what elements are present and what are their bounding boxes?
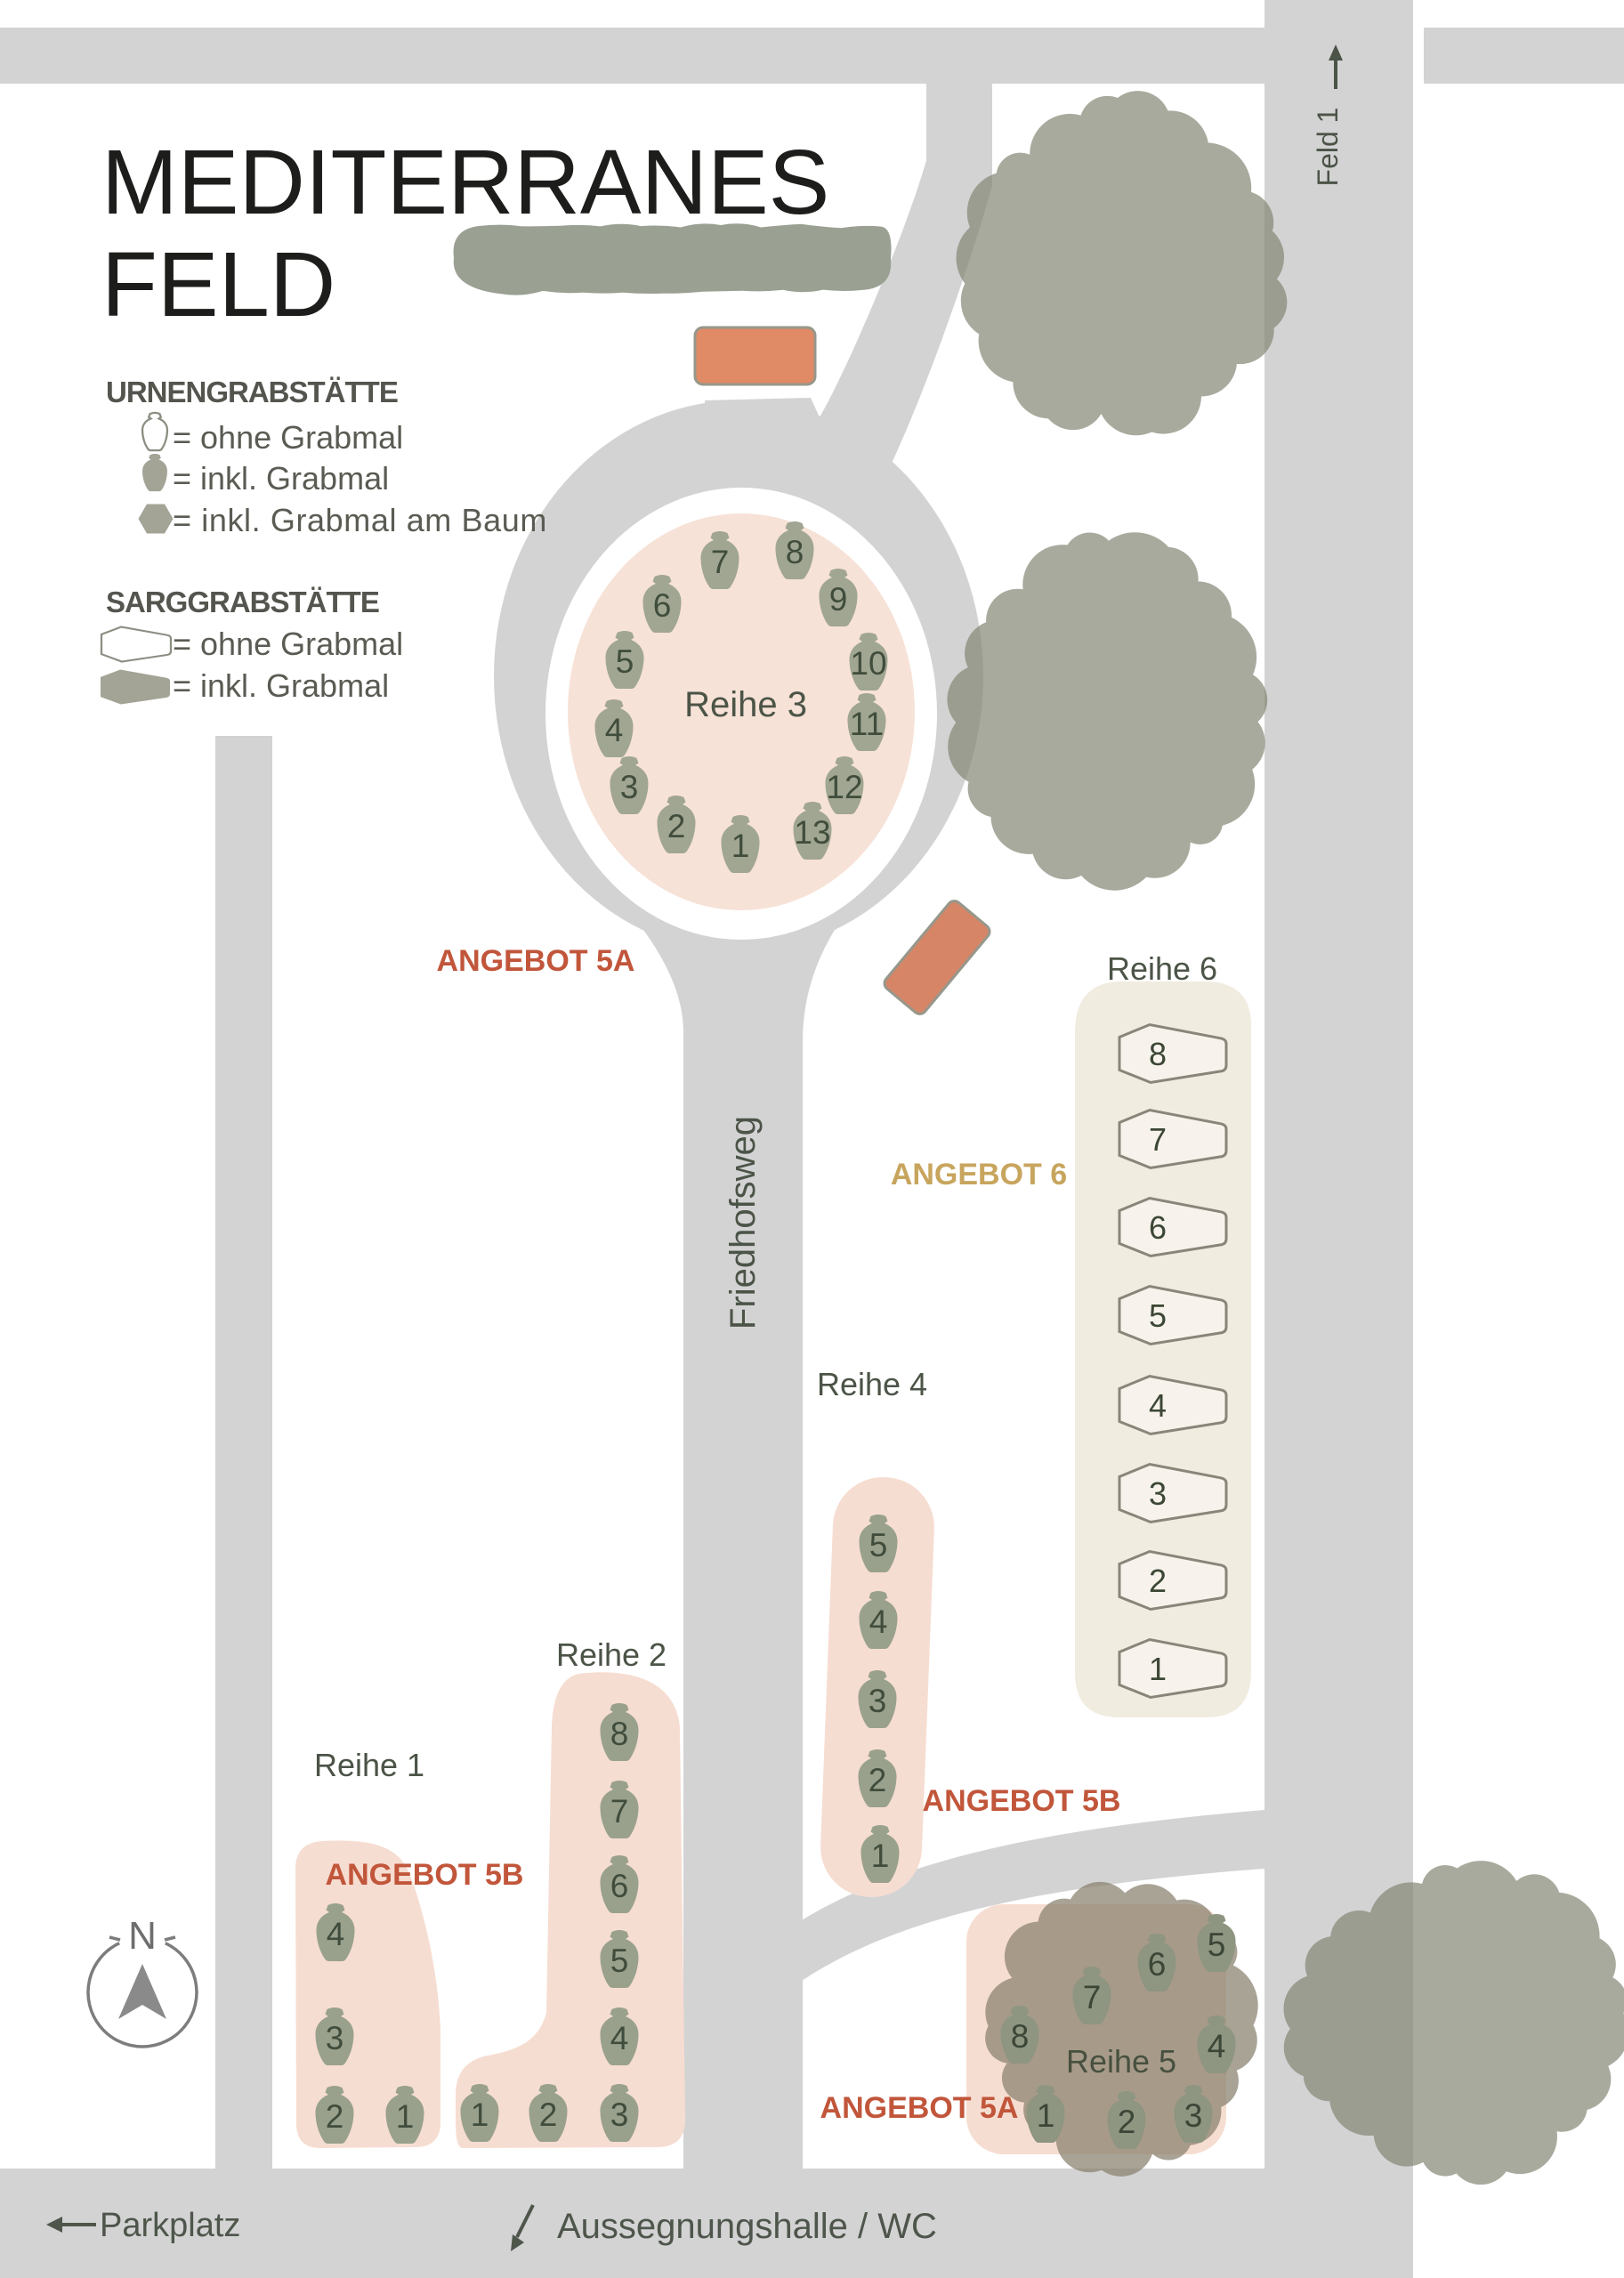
svg-text:7: 7 <box>1083 1979 1102 2015</box>
svg-text:1: 1 <box>471 2096 489 2133</box>
svg-text:= inkl. Grabmal am Baum: = inkl. Grabmal am Baum <box>173 502 547 538</box>
svg-text:= ohne Grabmal: = ohne Grabmal <box>173 626 403 662</box>
svg-text:11: 11 <box>850 706 884 742</box>
svg-text:1: 1 <box>1149 1651 1167 1687</box>
svg-text:5: 5 <box>610 1943 629 1979</box>
svg-text:Friedhofsweg: Friedhofsweg <box>723 1116 763 1329</box>
svg-text:4: 4 <box>610 2020 629 2056</box>
svg-text:7: 7 <box>610 1793 629 1830</box>
svg-text:8: 8 <box>1011 2018 1030 2055</box>
svg-text:6: 6 <box>1149 1209 1167 1246</box>
svg-text:3: 3 <box>326 2020 344 2056</box>
svg-text:3: 3 <box>1184 2097 1203 2134</box>
svg-text:MEDITERRANES: MEDITERRANES <box>101 131 829 233</box>
svg-text:4: 4 <box>327 1916 345 1952</box>
svg-text:5: 5 <box>616 643 634 680</box>
svg-text:= inkl. Grabmal: = inkl. Grabmal <box>173 667 389 704</box>
svg-text:Parkplatz: Parkplatz <box>100 2207 240 2244</box>
svg-text:FELD: FELD <box>101 233 335 335</box>
svg-text:8: 8 <box>610 1716 629 1752</box>
svg-text:7: 7 <box>1149 1121 1167 1158</box>
svg-text:2: 2 <box>869 1762 887 1798</box>
svg-text:ANGEBOT 5A: ANGEBOT 5A <box>437 944 635 978</box>
svg-text:1: 1 <box>871 1838 890 1874</box>
svg-text:5: 5 <box>1208 1927 1226 1963</box>
svg-text:8: 8 <box>1149 1036 1167 1072</box>
svg-text:7: 7 <box>711 544 730 580</box>
svg-text:Feld 1: Feld 1 <box>1312 108 1344 187</box>
svg-text:= ohne Grabmal: = ohne Grabmal <box>173 419 403 456</box>
svg-text:Reihe 3: Reihe 3 <box>684 685 807 724</box>
svg-text:4: 4 <box>605 712 624 748</box>
svg-text:6: 6 <box>653 587 672 624</box>
svg-text:3: 3 <box>610 2096 629 2133</box>
svg-text:ANGEBOT 5A: ANGEBOT 5A <box>820 2091 1019 2125</box>
svg-text:Reihe 2: Reihe 2 <box>556 1636 667 1673</box>
svg-text:ANGEBOT 6: ANGEBOT 6 <box>891 1158 1067 1192</box>
svg-text:Reihe 6: Reihe 6 <box>1107 950 1217 987</box>
svg-text:5: 5 <box>869 1527 888 1563</box>
svg-text:1: 1 <box>731 828 750 864</box>
svg-text:ANGEBOT 5B: ANGEBOT 5B <box>923 1784 1121 1818</box>
svg-text:SARGGRABSTÄTTE: SARGGRABSTÄTTE <box>106 586 379 618</box>
svg-text:4: 4 <box>1208 2028 1226 2064</box>
svg-text:6: 6 <box>610 1868 629 1904</box>
svg-text:6: 6 <box>1148 1946 1167 1983</box>
svg-text:5: 5 <box>1149 1297 1167 1334</box>
svg-text:2: 2 <box>667 808 686 844</box>
svg-text:8: 8 <box>786 534 804 570</box>
svg-text:3: 3 <box>1149 1475 1167 1512</box>
svg-text:Aussegnungshalle / WC: Aussegnungshalle / WC <box>557 2207 937 2246</box>
svg-text:3: 3 <box>620 769 639 805</box>
svg-text:9: 9 <box>829 581 848 618</box>
svg-text:1: 1 <box>1037 2097 1055 2134</box>
svg-text:2: 2 <box>326 2098 344 2135</box>
svg-text:12: 12 <box>826 769 862 805</box>
svg-text:13: 13 <box>794 814 830 851</box>
svg-text:4: 4 <box>869 1603 888 1640</box>
svg-text:= inkl. Grabmal: = inkl. Grabmal <box>173 460 389 497</box>
svg-text:2: 2 <box>539 2096 558 2133</box>
svg-text:Reihe 5: Reihe 5 <box>1066 2043 1176 2080</box>
svg-text:10: 10 <box>850 645 886 682</box>
svg-text:Reihe 4: Reihe 4 <box>817 1366 927 1402</box>
svg-text:Reihe 1: Reihe 1 <box>314 1747 424 1783</box>
svg-text:ANGEBOT 5B: ANGEBOT 5B <box>326 1858 524 1892</box>
svg-text:3: 3 <box>869 1683 887 1719</box>
svg-text:URNENGRABSTÄTTE: URNENGRABSTÄTTE <box>106 376 398 408</box>
svg-text:2: 2 <box>1118 2104 1136 2140</box>
svg-text:N: N <box>128 1914 157 1958</box>
svg-text:2: 2 <box>1149 1563 1167 1599</box>
svg-text:4: 4 <box>1149 1387 1167 1424</box>
svg-text:1: 1 <box>396 2098 415 2135</box>
